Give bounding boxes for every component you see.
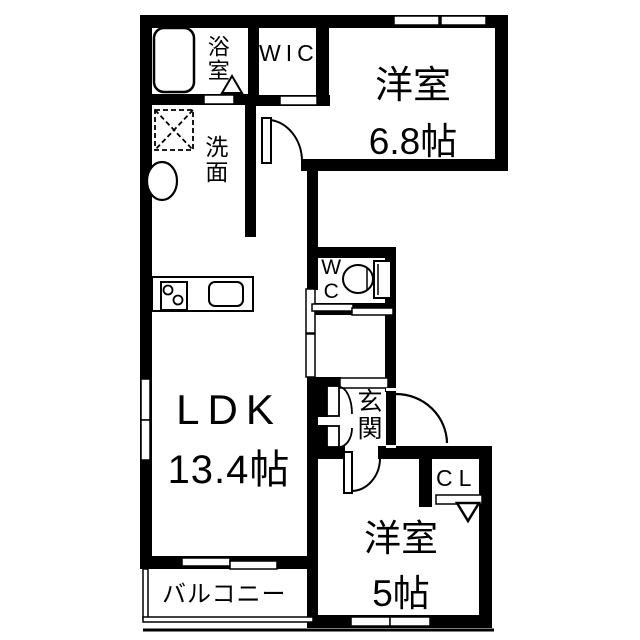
wall-bedroom1-right xyxy=(495,15,508,171)
window-icon-balcony-2 xyxy=(230,561,277,569)
sliding-door-icon-wc-1 xyxy=(312,304,353,311)
entrance-door-leaf xyxy=(386,391,396,445)
door-leaf-bedroom1 xyxy=(262,118,271,163)
sliding-door-icon-ldk-2 xyxy=(306,334,315,377)
wall-closet-left xyxy=(419,446,432,507)
room-label-closet: CL xyxy=(436,466,477,491)
window-icon-bedroom2-1 xyxy=(351,617,390,626)
wall-hall-right xyxy=(307,165,318,258)
balcony-parapet-left xyxy=(143,569,148,619)
balcony-parapet-bottom xyxy=(143,617,313,622)
door-gap-bath xyxy=(204,95,234,104)
sliding-door-icon-wc-2 xyxy=(352,308,393,315)
kitchen-sink-icon xyxy=(209,282,243,306)
room-size-bedroom1: 6.8帖 xyxy=(330,111,496,165)
room-label-entrance: 玄関 xyxy=(354,388,381,442)
shoe-cabinet-door-leaf-2 xyxy=(327,426,339,447)
window-icon-bedroom1-top-2 xyxy=(441,16,486,25)
washing-machine-pan-icon xyxy=(155,110,193,150)
wall-bath-bottom xyxy=(140,94,259,105)
door-gap-wic xyxy=(280,96,317,105)
room-label-wc: WC xyxy=(319,256,342,304)
room-label-wic: WIC xyxy=(259,41,319,66)
room-label-bedroom1: 洋室 6.8帖 xyxy=(330,54,496,165)
shoe-cabinet-door-leaf-1 xyxy=(327,386,339,416)
wall-under-entrance xyxy=(307,446,492,459)
door-leaf-bedroom2 xyxy=(344,452,352,493)
door-swing-icon-cabinet-1 xyxy=(339,387,352,414)
room-label-bedroom2: 洋室 5帖 xyxy=(320,508,482,617)
room-label-ldk: LDK 13.4帖 xyxy=(143,386,315,495)
wall-wc-left xyxy=(307,247,318,290)
floorplan: 浴室 WIC 洋室 6.8帖 洗面 WC LDK 13.4帖 玄関 洋室 5帖 … xyxy=(0,0,640,640)
room-label-bath: 浴室 xyxy=(205,35,229,83)
wall-bath-wic-divider xyxy=(248,15,259,106)
window-icon-balcony-1 xyxy=(182,558,230,566)
room-name-bedroom2: 洋室 xyxy=(320,508,482,562)
room-name-ldk: LDK xyxy=(143,386,315,434)
door-swing-icon-bedroom2 xyxy=(352,459,380,491)
window-icon-bedroom2-2 xyxy=(390,617,430,626)
entrance-step xyxy=(340,378,388,388)
gas-stove-icon xyxy=(161,282,187,310)
room-size-bedroom2: 5帖 xyxy=(320,563,482,617)
room-label-washroom: 洗面 xyxy=(202,135,227,185)
room-name-bedroom1: 洋室 xyxy=(330,54,496,109)
window-icon-bedroom1-top-1 xyxy=(394,16,439,25)
room-label-balcony: バルコニー xyxy=(162,582,287,608)
door-swing-icon-bedroom1 xyxy=(271,120,302,160)
toilet-icon xyxy=(343,261,391,298)
room-size-ldk: 13.4帖 xyxy=(143,437,315,495)
door-swing-icon-cabinet-2 xyxy=(339,428,352,447)
bathtub-icon xyxy=(154,28,194,92)
door-swing-icon-entrance xyxy=(396,394,447,443)
wall-washroom-right xyxy=(245,94,256,237)
wash-basin-icon xyxy=(147,162,177,200)
